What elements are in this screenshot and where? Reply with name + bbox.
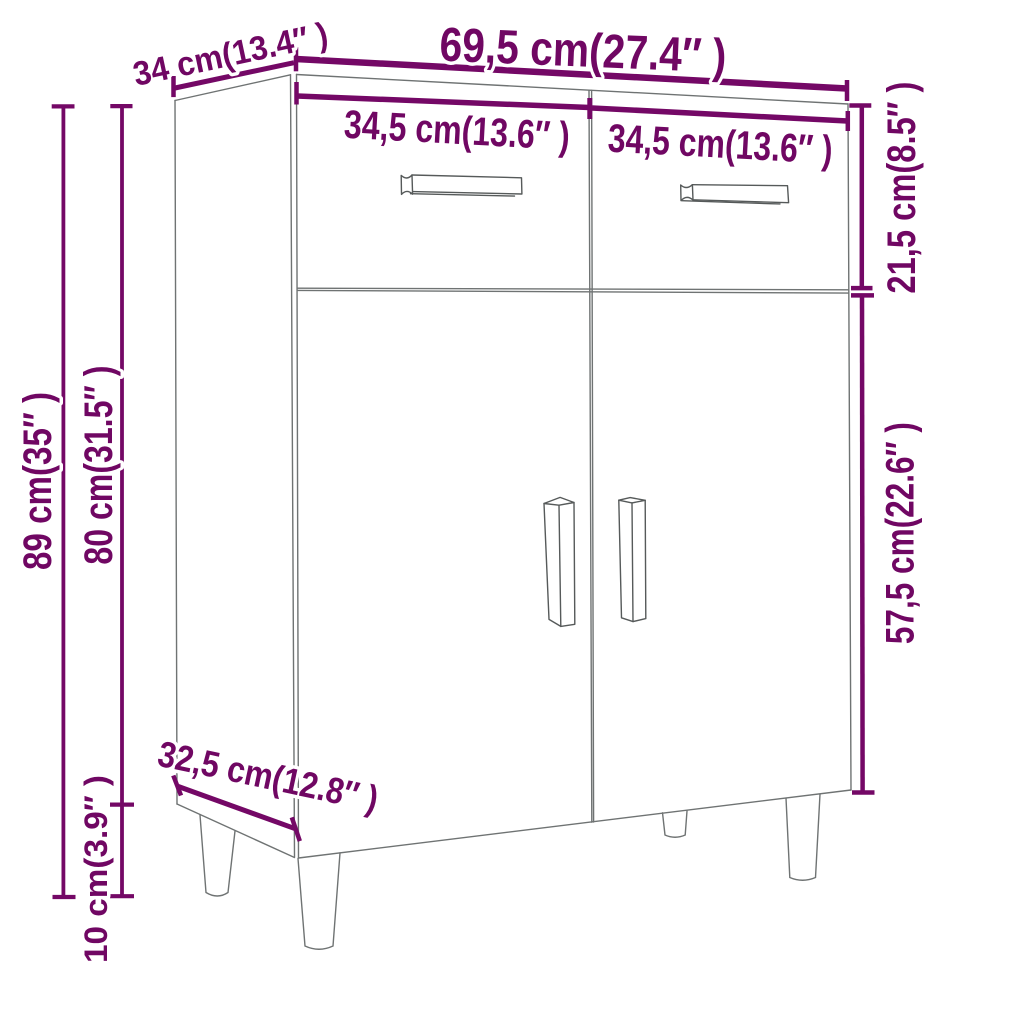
svg-text:57,5 cm(22.6″ ): 57,5 cm(22.6″ ) <box>879 422 923 644</box>
svg-text:80 cm(31.5″ ): 80 cm(31.5″ ) <box>77 366 121 565</box>
svg-text:21,5 cm(8.5″ ): 21,5 cm(8.5″ ) <box>880 82 924 294</box>
svg-text:10 cm(3.9″ ): 10 cm(3.9″ ) <box>78 775 114 963</box>
svg-text:89 cm(35″ ): 89 cm(35″ ) <box>16 392 60 570</box>
